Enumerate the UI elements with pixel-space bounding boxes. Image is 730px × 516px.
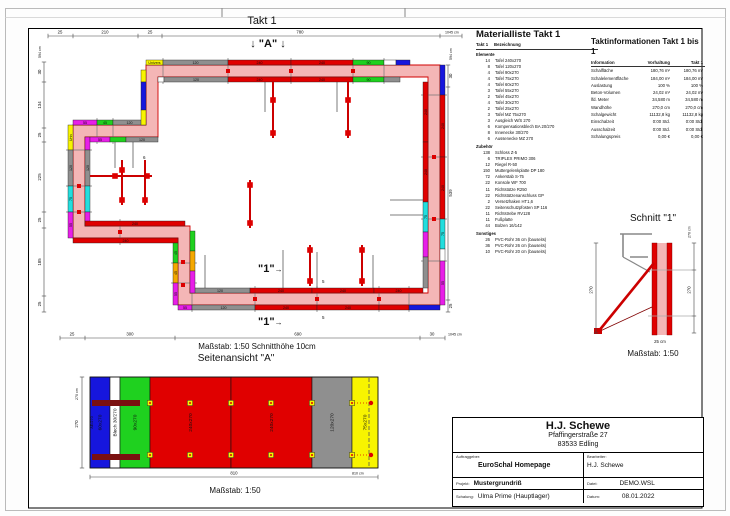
formwork-value: Ulma Prime (Hauptlager) <box>478 493 550 500</box>
takt-info: Taktinformationen Takt 1 bis 1 Informati… <box>591 37 705 140</box>
title-block: H.J. Schewe Pfaffingerstraße 27 83533 Ed… <box>452 417 704 507</box>
company-name: H.J. Schewe <box>453 420 703 432</box>
plan-scale-note: Maßstab: 1:50 Schnitthöhe 10cm <box>142 342 372 351</box>
info-value: 0:00 Std. <box>670 118 703 125</box>
svg-text:60x270: 60x270 <box>98 414 104 430</box>
formwork-panel <box>440 249 445 261</box>
cut-marker-label: "1" <box>258 316 275 328</box>
svg-text:240: 240 <box>319 61 325 65</box>
editor-value: H.J. Schewe <box>587 462 700 469</box>
info-value: 0:00 Std. <box>637 118 670 125</box>
editor-cell: Bearbeiter: H.J. Schewe <box>584 453 703 478</box>
item-name: Aussenecke MZ 270 <box>490 136 533 142</box>
svg-text:45: 45 <box>174 271 178 275</box>
info-name: Beton-Volumen <box>591 89 637 96</box>
cut-marker-1b: "1"→ <box>258 316 283 328</box>
svg-text:539: 539 <box>448 189 453 197</box>
svg-text:270 cm: 270 cm <box>688 226 692 238</box>
svg-text:240: 240 <box>132 222 138 226</box>
svg-text:134: 134 <box>37 101 42 109</box>
info-name: Auslastung <box>591 82 637 89</box>
svg-text:55: 55 <box>83 121 87 125</box>
svg-text:270: 270 <box>687 286 692 294</box>
svg-text:1045 cm: 1045 cm <box>445 31 459 35</box>
svg-text:240: 240 <box>319 78 325 82</box>
info-value: 100 % <box>637 82 670 89</box>
info-name: Schalfläche <box>591 67 637 74</box>
svg-text:240: 240 <box>396 289 402 293</box>
svg-text:270: 270 <box>589 286 594 294</box>
svg-text:240: 240 <box>283 306 289 310</box>
formwork-panel <box>85 186 90 212</box>
material-item-row: 44Bolzen 16/142 <box>476 223 598 229</box>
takt-info-row: Schalgewicht11132,8 kg11132,8 kg <box>591 111 705 118</box>
info-value: 184,00 m² <box>637 75 670 82</box>
section-view-title: Schnitt "1" <box>598 213 708 224</box>
info-value: 0,00 € <box>670 133 703 140</box>
svg-text:55: 55 <box>183 306 187 310</box>
svg-text:75: 75 <box>441 232 445 236</box>
svg-text:90: 90 <box>367 61 371 65</box>
svg-text:25: 25 <box>58 30 63 35</box>
file-cell: Datei: DEMO.WSL <box>584 478 703 490</box>
svg-text:25: 25 <box>37 217 42 222</box>
section-marker-a: ↓ "A" ↓ <box>228 38 308 50</box>
formwork-panel <box>396 60 410 65</box>
svg-text:25: 25 <box>37 301 42 306</box>
formwork-panel <box>190 271 195 293</box>
company-street: Pfaffingerstraße 27 <box>453 432 703 441</box>
svg-text:25: 25 <box>448 303 453 308</box>
takt-info-row: Schalfläche180,76 m²180,76 m² <box>591 67 705 74</box>
svg-text:1045 cm: 1045 cm <box>448 333 462 337</box>
svg-text:25 cm: 25 cm <box>654 339 666 344</box>
side-view-title: Seitenansicht "A" <box>126 353 346 364</box>
takt-info-row: Ausschalzeit0:00 Std.0:00 Std. <box>591 126 705 133</box>
svg-text:240: 240 <box>340 289 346 293</box>
svg-text:240: 240 <box>278 289 284 293</box>
plan-title: Takt 1 <box>232 15 292 27</box>
material-item-row: 10PVC-Rohr 20 cm (bauseits) <box>476 249 598 255</box>
formwork-panel <box>141 82 146 110</box>
info-value: 0:00 Std. <box>670 126 703 133</box>
info-value: 270,0 cm <box>670 104 703 111</box>
info-name: Schalgewicht <box>591 111 637 118</box>
project-value: Mustergrundriß <box>474 480 522 487</box>
item-qty: 10 <box>476 249 490 255</box>
svg-text:120x270: 120x270 <box>330 413 336 432</box>
material-list-title: Materialliste Takt 1 <box>476 29 598 40</box>
col-vorhaltung: Vorhaltung <box>637 59 670 66</box>
item-name: PVC-Rohr 20 cm (bauseits) <box>490 249 546 255</box>
formwork-panel <box>379 305 409 310</box>
formwork-panel <box>141 70 146 82</box>
formwork-panel <box>384 60 396 65</box>
svg-text:690: 690 <box>294 332 302 337</box>
formwork-panel <box>141 110 146 125</box>
info-value: 11132,8 kg <box>670 111 703 118</box>
date-value: 08.01.2022 <box>622 493 655 500</box>
svg-text:240: 240 <box>123 239 129 243</box>
svg-text:240x270: 240x270 <box>188 413 194 432</box>
svg-text:30: 30 <box>37 69 42 74</box>
client-cell: Auftraggeber: EuroSchal Homepage <box>453 453 583 478</box>
svg-text:45: 45 <box>174 251 178 255</box>
formwork-panel <box>423 257 428 288</box>
col-name: Bezeichnung <box>494 42 521 49</box>
takt-info-row: Beton-Volumen24,02 m³24,02 m³ <box>591 89 705 96</box>
formwork-panel <box>190 231 195 251</box>
info-value: 24,02 m³ <box>670 89 703 96</box>
date-cell: Datum: 08.01.2022 <box>584 490 703 502</box>
formwork-panel <box>85 137 90 150</box>
formwork-panel <box>409 305 440 310</box>
cut-arrow-icon: → <box>275 265 283 274</box>
svg-text:55: 55 <box>98 138 102 142</box>
takt-info-header: Information Vorhaltung Takt 1 <box>591 59 705 67</box>
info-value: 184,00 m² <box>670 75 703 82</box>
formwork-panel <box>440 65 445 95</box>
client-value: EuroSchal Homepage <box>478 462 580 469</box>
svg-text:120: 120 <box>86 165 90 171</box>
formwork-panel <box>190 251 195 271</box>
drawing-sheet: Univers120240240901202402409024024075552… <box>0 0 730 516</box>
cut-marker-1a: "1"→ <box>258 263 283 275</box>
file-value: DEMO.WSL <box>619 480 654 487</box>
svg-text:810 cm: 810 cm <box>352 472 364 476</box>
svg-text:Blech 30/270: Blech 30/270 <box>113 408 119 436</box>
side-view-drawing: 60x270AE/270Blech 30/27090x270240x270240… <box>74 377 378 479</box>
svg-text:780: 780 <box>296 30 304 35</box>
svg-text:240: 240 <box>424 109 428 115</box>
info-value: 34,580 m <box>670 96 703 103</box>
svg-text:185: 185 <box>37 258 42 266</box>
formwork-label: Schalung: <box>456 494 474 499</box>
svg-text:AE/270: AE/270 <box>90 416 94 428</box>
svg-text:270 cm: 270 cm <box>75 388 79 400</box>
svg-text:120: 120 <box>217 289 223 293</box>
takt-info-row: lfd. Meter34,580 m34,580 m <box>591 96 705 103</box>
company-city: 83533 Edling <box>453 441 703 450</box>
info-value: 180,76 m² <box>637 67 670 74</box>
svg-text:Univers: Univers <box>148 61 160 65</box>
svg-text:90x270: 90x270 <box>133 414 139 430</box>
info-value: 180,76 m² <box>670 67 703 74</box>
editor-label: Bearbeiter: <box>587 454 700 459</box>
project-label: Projekt: <box>456 481 470 486</box>
date-label: Datum: <box>587 494 600 499</box>
svg-text:240: 240 <box>424 169 428 175</box>
info-name: Ausschalzeit <box>591 126 637 133</box>
svg-text:225: 225 <box>37 173 42 181</box>
material-list-items: Elemente14Tafel 240x2708Tafel 120x2704Ta… <box>476 52 598 256</box>
info-name: Wandhöhe <box>591 104 637 111</box>
svg-text:75: 75 <box>424 215 428 219</box>
info-value: 270,0 cm <box>637 104 670 111</box>
col-qty: Takt 1 <box>476 42 494 49</box>
svg-text:210: 210 <box>101 30 109 35</box>
item-qty: 6 <box>476 136 490 142</box>
project-cell: Projekt: Mustergrundriß <box>453 478 583 490</box>
client-label: Auftraggeber: <box>456 454 580 459</box>
svg-text:810: 810 <box>230 471 238 476</box>
svg-text:120: 120 <box>69 165 73 171</box>
svg-text:240: 240 <box>345 306 351 310</box>
svg-text:300: 300 <box>126 332 134 337</box>
svg-text:55: 55 <box>69 223 73 227</box>
info-name: lfd. Meter <box>591 96 637 103</box>
material-list-header: Takt 1 Bezeichnung <box>476 42 598 50</box>
svg-text:25: 25 <box>70 332 75 337</box>
svg-text:240: 240 <box>257 78 263 82</box>
svg-text:30: 30 <box>430 332 435 337</box>
svg-text:120: 120 <box>127 121 133 125</box>
svg-text:594 cm: 594 cm <box>38 46 42 58</box>
info-name: Schalungspreis <box>591 133 637 140</box>
info-value: 0:00 Std. <box>637 126 670 133</box>
info-name: Einschalzeit <box>591 118 637 125</box>
svg-text:270: 270 <box>74 420 79 428</box>
info-value: 0,00 € <box>637 133 670 140</box>
formwork-panel <box>110 137 126 142</box>
svg-text:120: 120 <box>139 138 145 142</box>
svg-text:25: 25 <box>148 30 153 35</box>
takt-info-row: Wandhöhe270,0 cm270,0 cm <box>591 104 705 111</box>
takt-info-title: Taktinformationen Takt 1 bis 1 <box>591 37 705 57</box>
svg-text:25: 25 <box>37 132 42 137</box>
svg-text:240: 240 <box>257 61 263 65</box>
takt-info-rows: Schalfläche180,76 m²180,76 m²Schalelemen… <box>591 67 705 140</box>
info-name: Schalelementfläche <box>591 75 637 82</box>
col-information: Information <box>591 59 637 66</box>
svg-text:120: 120 <box>193 61 199 65</box>
svg-text:30: 30 <box>448 73 453 78</box>
svg-text:55: 55 <box>441 281 445 285</box>
side-view-scale: Maßstab: 1:50 <box>160 486 310 495</box>
col-takt1: Takt 1 <box>670 59 703 66</box>
formwork-cell: Schalung: Ulma Prime (Hauptlager) <box>453 490 583 502</box>
svg-text:594 cm: 594 cm <box>449 48 453 60</box>
cut-arrow-icon: → <box>275 318 283 327</box>
svg-text:90: 90 <box>367 78 371 82</box>
section-view-scale: Maßstab: 1:50 <box>598 349 708 358</box>
info-value: 24,02 m³ <box>637 89 670 96</box>
takt-info-row: Einschalzeit0:00 Std.0:00 Std. <box>591 118 705 125</box>
item-name: Bolzen 16/142 <box>490 223 522 229</box>
formwork-panel <box>384 77 400 82</box>
info-value: 34,580 m <box>637 96 670 103</box>
svg-text:Univ: Univ <box>69 134 73 141</box>
svg-text:240x270: 240x270 <box>269 413 275 432</box>
takt-info-row: Schalelementfläche184,00 m²184,00 m² <box>591 75 705 82</box>
svg-text:120: 120 <box>193 78 199 82</box>
info-value: 100 % <box>670 82 703 89</box>
svg-text:240: 240 <box>441 185 445 191</box>
svg-text:75: 75 <box>69 197 73 201</box>
formwork-panel <box>423 232 428 257</box>
takt-info-row: Schalungspreis0,00 €0,00 € <box>591 133 705 140</box>
svg-text:120: 120 <box>221 306 227 310</box>
svg-text:55: 55 <box>174 292 178 296</box>
material-item-row: 6Aussenecke MZ 270 <box>476 136 598 142</box>
takt-info-row: Auslastung100 %100 % <box>591 82 705 89</box>
material-list: Materialliste Takt 1 Takt 1 Bezeichnung … <box>476 29 598 255</box>
svg-text:75x270: 75x270 <box>363 414 369 430</box>
info-value: 11132,8 kg <box>637 111 670 118</box>
formwork-panel <box>158 77 164 82</box>
item-qty: 44 <box>476 223 490 229</box>
svg-text:45: 45 <box>103 121 107 125</box>
file-label: Datei: <box>587 481 597 486</box>
svg-text:240: 240 <box>441 123 445 129</box>
cut-marker-label: "1" <box>258 263 275 275</box>
title-block-company: H.J. Schewe Pfaffingerstraße 27 83533 Ed… <box>453 418 703 453</box>
